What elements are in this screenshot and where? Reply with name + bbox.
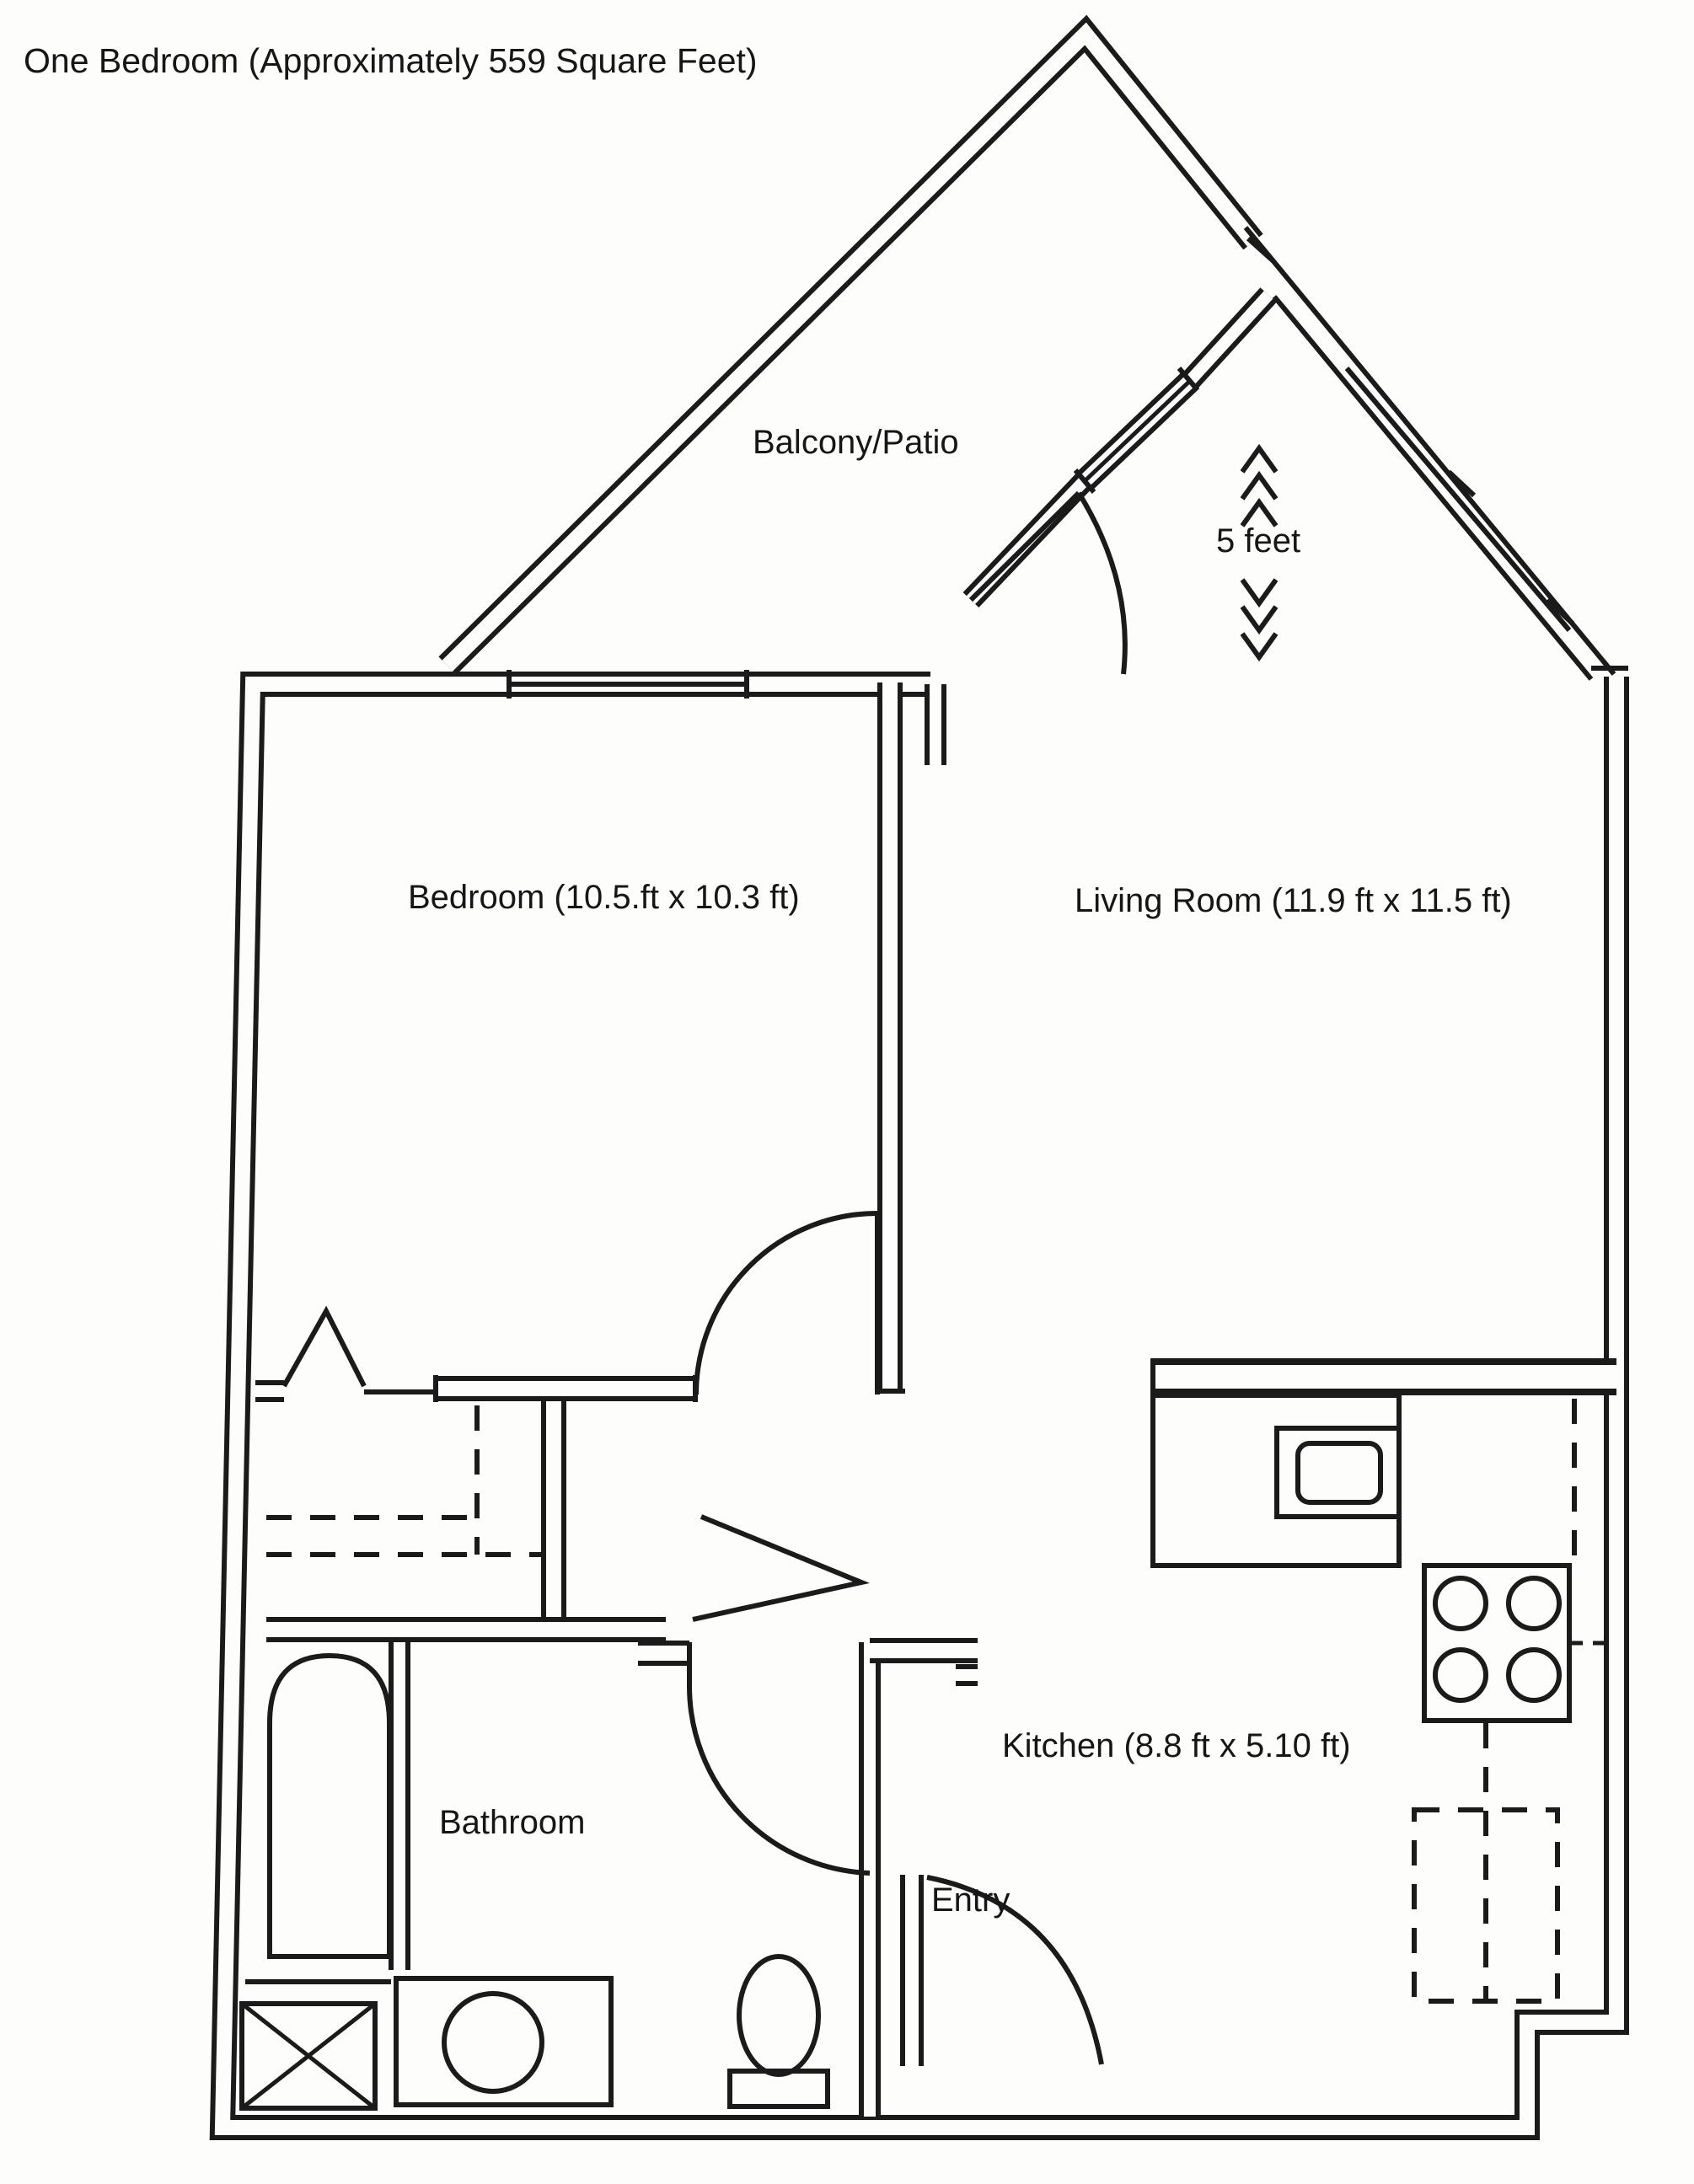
- shower-xbox-icon: [242, 2004, 375, 2108]
- page-title: One Bedroom (Approximately 559 Square Fe…: [24, 41, 758, 80]
- refrigerator-dashed-icon: [1414, 1723, 1557, 2001]
- closet: [255, 1311, 554, 1619]
- bathroom-door-swing-arc-icon: [689, 1642, 870, 1873]
- bathroom-label: Bathroom: [439, 1804, 585, 1841]
- kitchen-counter-icon: [1153, 1358, 1616, 1566]
- balcony-label: Balcony/Patio: [753, 424, 959, 461]
- entry-walls: [870, 1651, 978, 1675]
- floor-plan-drawing: One Bedroom (Approximately 559 Square Fe…: [0, 0, 1694, 2184]
- direction-arrow-icon: [693, 1517, 861, 1619]
- scale-label: 5 feet: [1216, 522, 1300, 559]
- bathroom-walls: [266, 1630, 870, 2117]
- exterior-walls: [222, 34, 1616, 2128]
- bedroom-bottom-wall: [436, 1375, 695, 1402]
- bedroom-door-swing-arc-icon: [696, 1213, 877, 1394]
- bedroom-window: [509, 670, 747, 699]
- bathtub-icon: [245, 1656, 391, 1982]
- toilet-icon: [730, 1956, 828, 2106]
- bedroom-living-wall: [876, 682, 905, 1391]
- floor-plan-page: One Bedroom (Approximately 559 Square Fe…: [0, 0, 1694, 2184]
- stove-burners-icon: [1424, 1566, 1606, 1721]
- kitchen-label: Kitchen (8.8 ft x 5.10 ft): [1002, 1727, 1351, 1764]
- bifold-door-icon: [284, 1311, 364, 1386]
- bedroom-label: Bedroom (10.5.ft x 10.3 ft): [408, 879, 800, 916]
- entry-label: Entry: [931, 1882, 1010, 1919]
- living-room-label: Living Room (11.9 ft x 11.5 ft): [1075, 882, 1512, 919]
- vanity-sink-icon: [396, 1978, 611, 2105]
- window-triple-line-icon: [1246, 227, 1628, 679]
- kitchen-sink-icon: [1298, 1443, 1380, 1502]
